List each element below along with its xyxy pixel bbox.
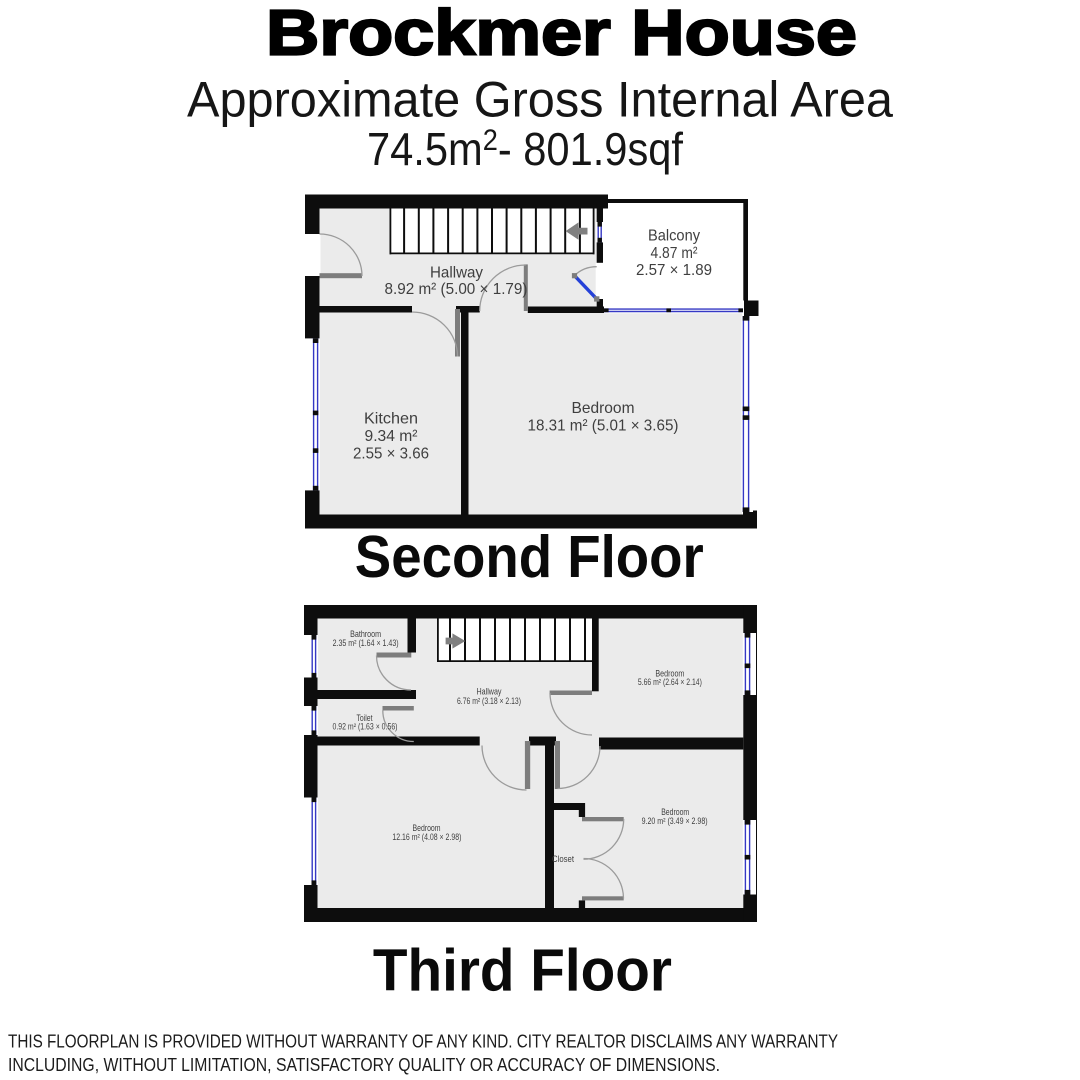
svg-text:12.16 m² (4.08 × 2.98): 12.16 m² (4.08 × 2.98) <box>392 832 461 842</box>
svg-text:9.20 m² (3.49 × 2.98): 9.20 m² (3.49 × 2.98) <box>642 816 708 826</box>
svg-text:6.76 m² (3.18 × 2.13): 6.76 m² (3.18 × 2.13) <box>457 696 521 706</box>
svg-text:4.87 m²: 4.87 m² <box>651 245 699 262</box>
svg-text:Closet: Closet <box>552 854 574 864</box>
svg-text:Brockmer House: Brockmer House <box>266 0 857 69</box>
svg-text:74.5m2- 801.9sqf: 74.5m2- 801.9sqf <box>367 123 683 175</box>
svg-text:18.31 m² (5.01 × 3.65): 18.31 m² (5.01 × 3.65) <box>528 418 679 435</box>
svg-text:Hallway: Hallway <box>430 265 483 282</box>
svg-text:5.66 m² (2.64 × 2.14): 5.66 m² (2.64 × 2.14) <box>638 677 702 687</box>
svg-text:THIS FLOORPLAN IS PROVIDED WIT: THIS FLOORPLAN IS PROVIDED WITHOUT WARRA… <box>8 1032 838 1052</box>
svg-text:Balcony: Balcony <box>648 228 700 245</box>
svg-text:Kitchen: Kitchen <box>364 410 418 427</box>
svg-text:Approximate Gross Internal Are: Approximate Gross Internal Area <box>187 71 893 127</box>
svg-text:2.35 m² (1.64 × 1.43): 2.35 m² (1.64 × 1.43) <box>333 638 399 648</box>
svg-text:8.92 m² (5.00 × 1.79): 8.92 m² (5.00 × 1.79) <box>385 281 528 298</box>
svg-text:Hallway: Hallway <box>477 687 502 697</box>
svg-text:INCLUDING, WITHOUT LIMITATION,: INCLUDING, WITHOUT LIMITATION, SATISFACT… <box>8 1055 720 1075</box>
svg-text:2.55 × 3.66: 2.55 × 3.66 <box>353 446 429 463</box>
svg-text:2.57 × 1.89: 2.57 × 1.89 <box>636 262 712 279</box>
svg-text:Bedroom: Bedroom <box>572 400 635 417</box>
svg-text:9.34 m²: 9.34 m² <box>365 428 419 445</box>
svg-text:Third Floor: Third Floor <box>373 938 672 1004</box>
svg-text:0.92 m² (1.63 × 0.56): 0.92 m² (1.63 × 0.56) <box>333 722 398 732</box>
svg-text:Second Floor: Second Floor <box>355 524 704 590</box>
